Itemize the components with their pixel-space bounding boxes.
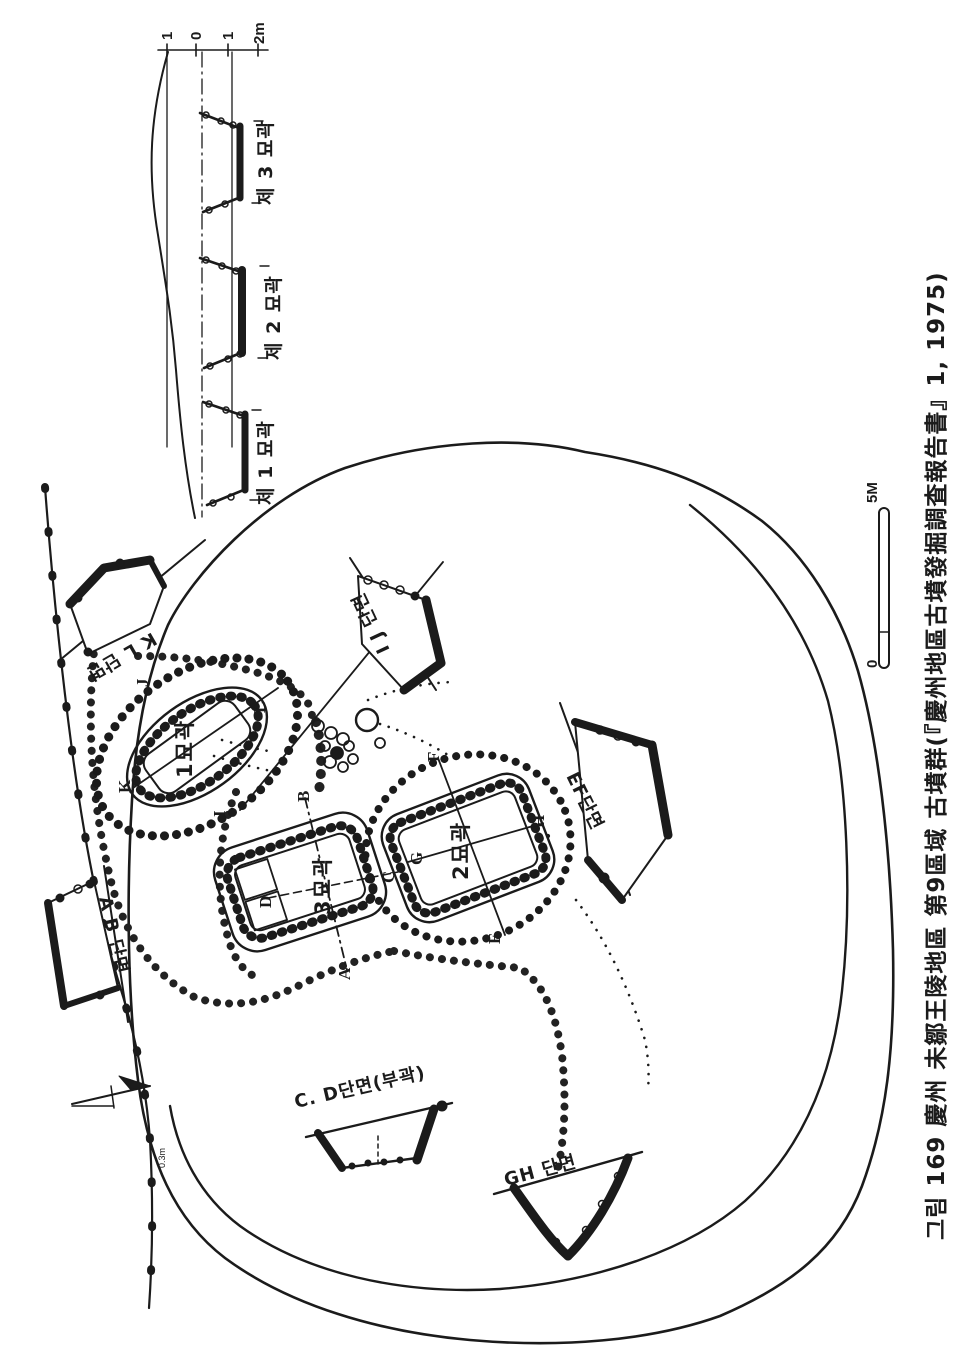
- profile-pit1-label: 제 1 묘곽: [255, 420, 277, 505]
- point-G: G: [407, 852, 426, 865]
- section-label-GH: GH 단면: [502, 1151, 579, 1190]
- ruler-tick-1: 1: [159, 32, 176, 40]
- point-B: B: [294, 791, 313, 802]
- tomb3-label: 3묘곽: [311, 856, 335, 915]
- stone-chain-north: [138, 656, 312, 716]
- scale-bar-5m: 5M: [864, 482, 881, 503]
- section-label-CD: C. D단면(부곽): [292, 1062, 427, 1113]
- tomb3-pit-outline: [207, 806, 393, 958]
- point-L: L: [250, 702, 269, 713]
- point-H: H: [529, 815, 548, 828]
- scale-bar: [879, 508, 889, 668]
- dot-mark: [546, 834, 549, 837]
- tomb1-label: 1묘곽: [173, 719, 197, 778]
- section-drawing-CD: [306, 1101, 452, 1169]
- excavation-plan-drawing: 제 1 묘곽 제 2 묘곽 제 3 묘곽 1 0 1 2m 1묘곽 3묘곽 2묘…: [0, 0, 974, 1348]
- point-A: A: [335, 967, 354, 980]
- point-K: K: [115, 779, 134, 793]
- point-E: E: [485, 933, 504, 944]
- profile-section: [152, 44, 269, 518]
- ruler-tick-0: 0: [188, 32, 205, 40]
- section-line-G-H: [408, 824, 540, 862]
- profile-pit3-label: 제 3 묘곽: [255, 120, 277, 205]
- point-C: C: [379, 871, 398, 883]
- point-J: J: [133, 678, 152, 687]
- scanned-figure-page: 제 1 묘곽 제 2 묘곽 제 3 묘곽 1 0 1 2m 1묘곽 3묘곽 2묘…: [0, 0, 974, 1348]
- profile-surface-curve: [152, 52, 195, 518]
- ruler-tick-1b: 1: [220, 32, 237, 40]
- scale-bar-0: 0: [864, 660, 881, 668]
- stone-chain-center: [316, 722, 321, 796]
- point-F: F: [424, 752, 443, 762]
- profile-pit2-label: 제 2 묘곽: [263, 275, 285, 360]
- tomb3-hatching: [222, 821, 377, 943]
- figure-caption: 그림 169 慶州 未鄒王陵地區 第9區域 古墳群(『慶州地區古墳發掘調査報告書…: [923, 271, 950, 1240]
- profile-pit-2: [200, 257, 269, 369]
- ruler-tick-2m: 2m: [251, 22, 268, 44]
- point-I: I: [210, 810, 229, 817]
- tomb-3: [207, 798, 398, 970]
- spot-height-label: 0.3m: [157, 1148, 167, 1168]
- tomb1-pit-outline: [106, 664, 288, 831]
- tomb1-chamber: [139, 696, 255, 798]
- point-D: D: [256, 896, 275, 908]
- tomb2-label: 2묘곽: [449, 821, 473, 880]
